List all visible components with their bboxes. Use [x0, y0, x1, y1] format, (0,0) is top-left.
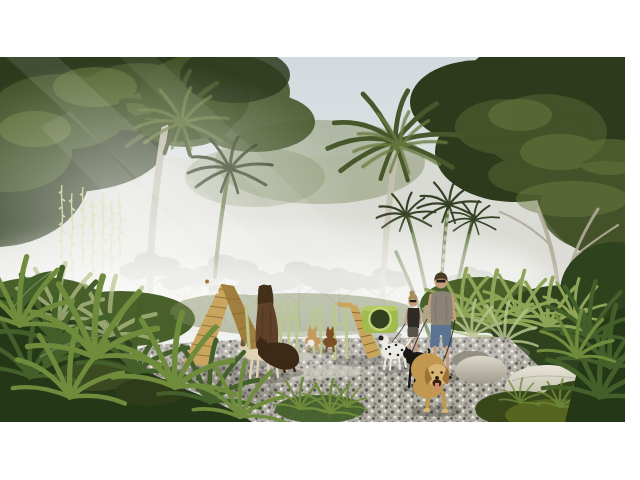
- park-rendering: [0, 57, 625, 422]
- agility-tunnel: [362, 306, 398, 333]
- page: [0, 0, 640, 480]
